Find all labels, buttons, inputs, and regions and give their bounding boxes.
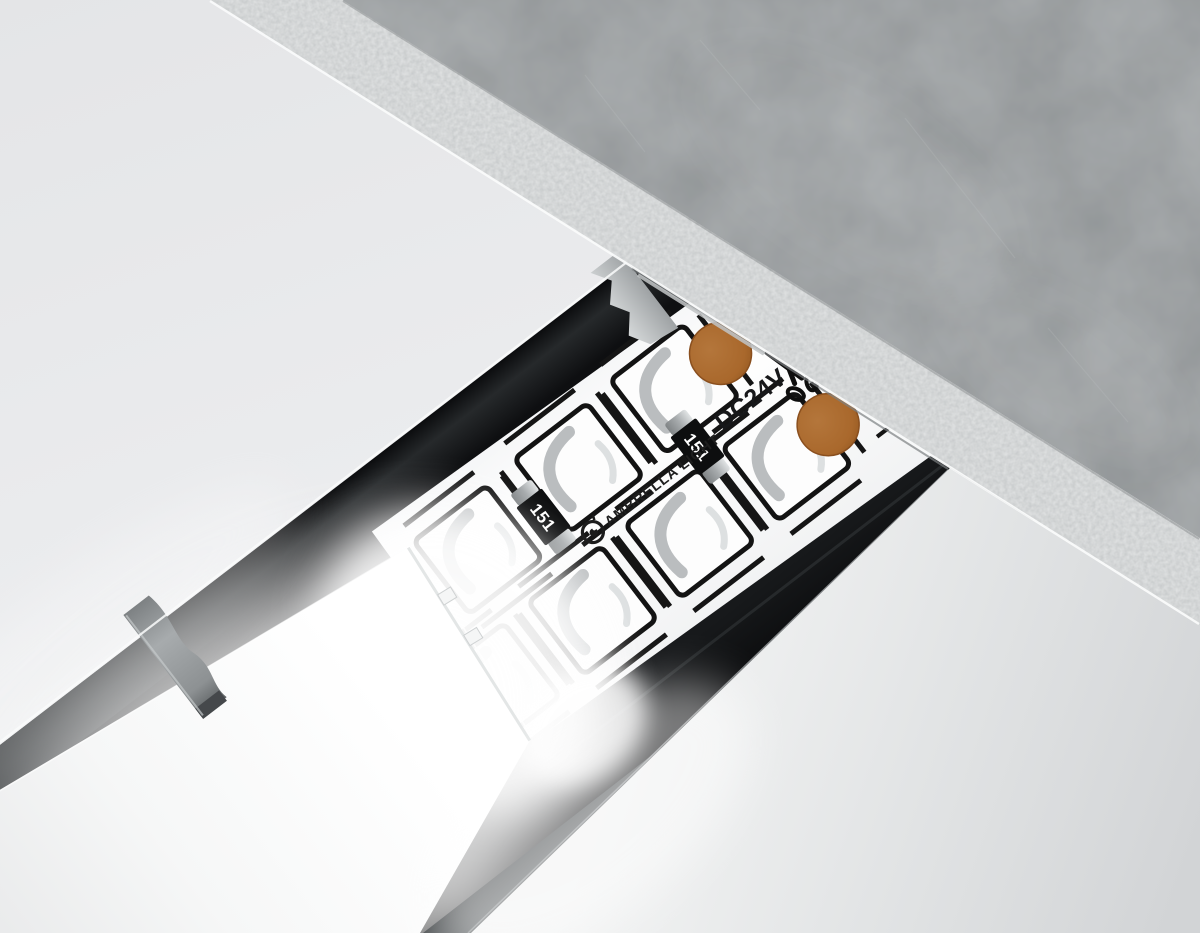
- render-canvas: 151 151 + − DC24V AMBREL: [0, 0, 1200, 933]
- led-profile-product-render: 151 151 + − DC24V AMBREL: [0, 0, 1200, 933]
